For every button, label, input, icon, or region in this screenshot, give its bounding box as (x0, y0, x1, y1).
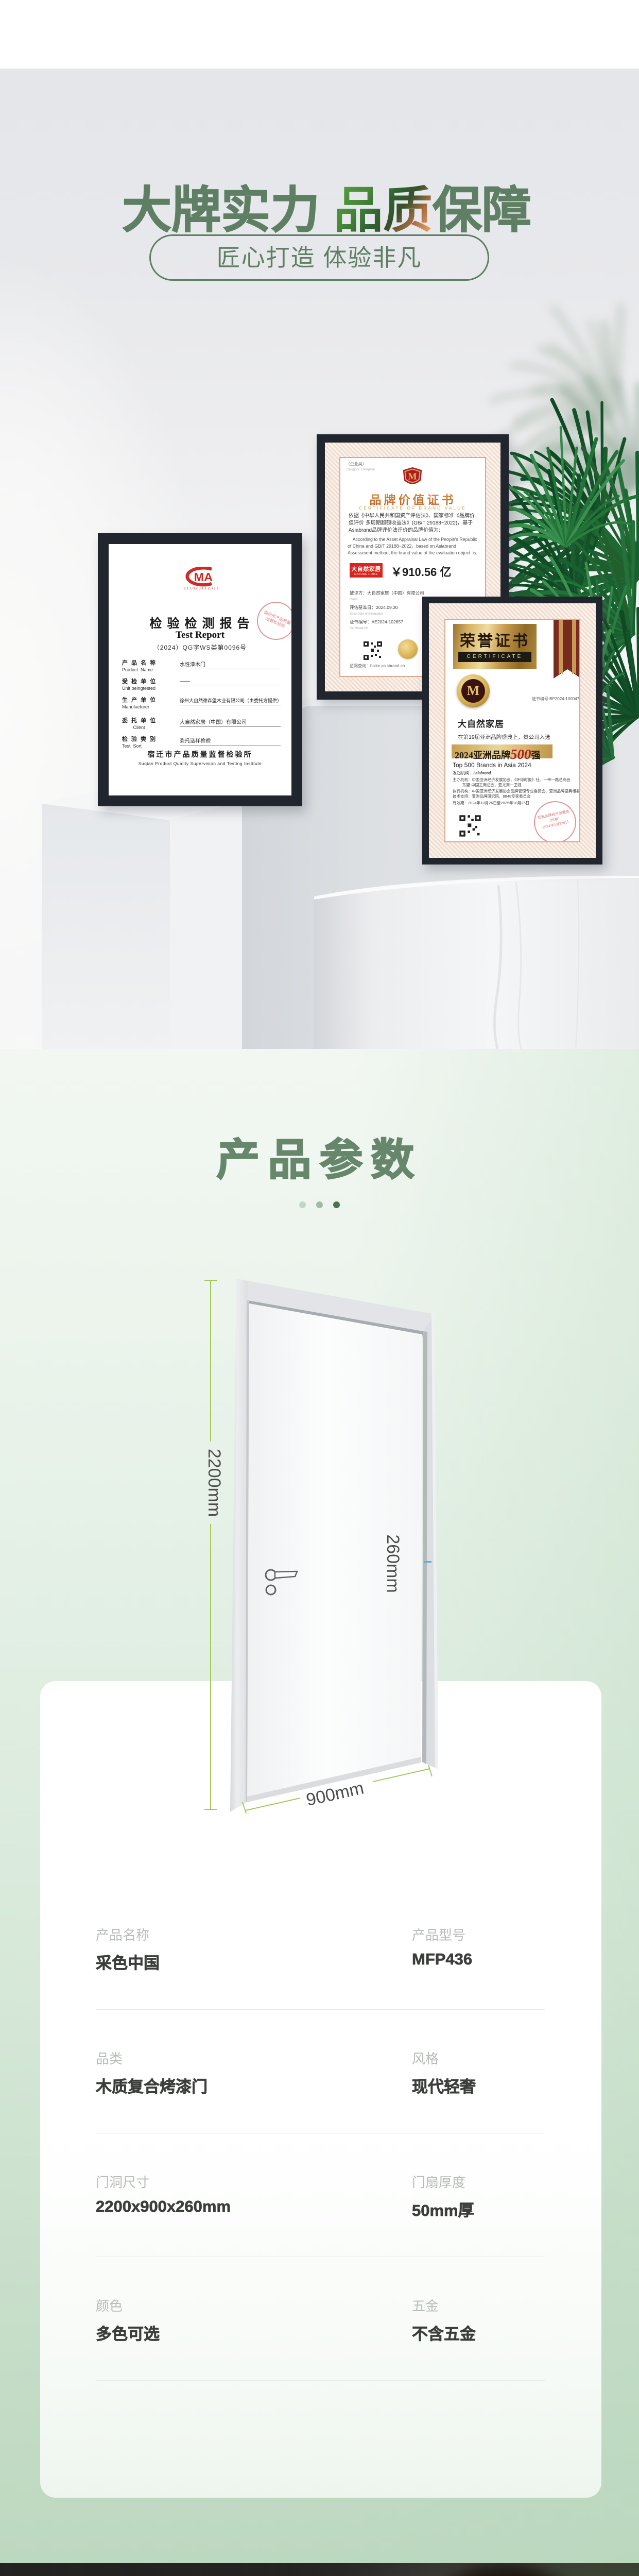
svg-text:260mm: 260mm (383, 1534, 403, 1592)
svg-text:MA: MA (194, 570, 213, 584)
svg-text:2 1 1 0 2 0 1 1 2 3 1 1: 2 1 1 0 2 0 1 1 2 3 1 1 (184, 587, 219, 590)
svg-text:M: M (408, 471, 417, 482)
svg-text:2200mm: 2200mm (204, 1449, 224, 1517)
